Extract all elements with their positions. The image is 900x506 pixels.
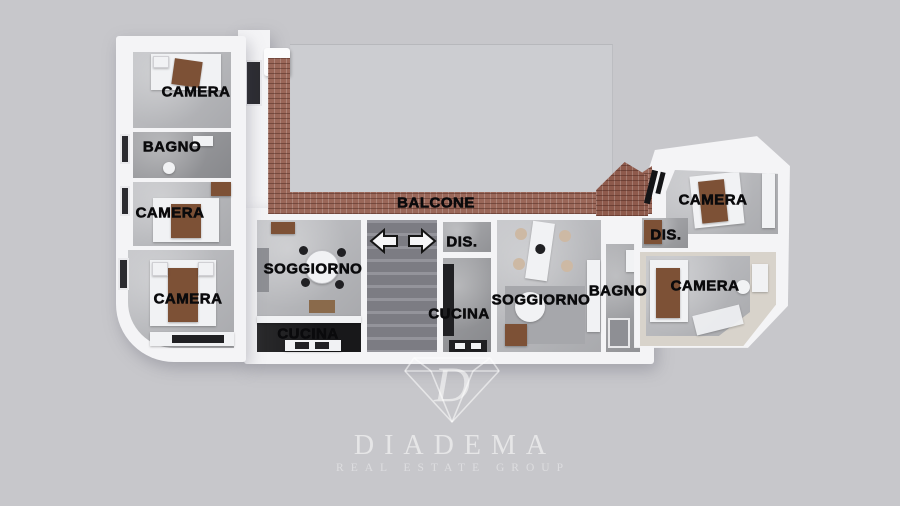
- wardrobe: [211, 182, 231, 196]
- room-label-cucina-left: CUCINA: [277, 326, 338, 343]
- room-label-soggiorno-right: SOGGIORNO: [492, 292, 591, 309]
- balcony-floor: [290, 44, 613, 195]
- chair: [515, 228, 527, 240]
- room-label-camera-top-left: CAMERA: [162, 84, 231, 101]
- window: [120, 186, 130, 216]
- floorplan-render: CAMERA BAGNO CAMERA CAMERA SOGGIORNO CUC…: [0, 0, 900, 506]
- room-label-camera-bottom-right: CAMERA: [671, 278, 740, 295]
- chair: [301, 278, 310, 287]
- sink-unit: [752, 264, 768, 292]
- balcony-wall-window: [245, 60, 262, 106]
- chair: [299, 246, 308, 255]
- chair: [335, 280, 344, 289]
- room-label-camera-top-right: CAMERA: [679, 192, 748, 209]
- dining-table: [525, 221, 555, 281]
- room-label-camera-bottom-left: CAMERA: [154, 291, 223, 308]
- chair: [561, 260, 573, 272]
- cabinet: [271, 222, 295, 234]
- chest: [309, 300, 335, 313]
- watermark-monogram: D: [434, 355, 470, 413]
- window: [120, 134, 130, 164]
- room-label-cucina-center: CUCINA: [428, 306, 489, 323]
- room-floor-camera-bottom-right: [640, 252, 776, 346]
- stairs-arrows: [369, 228, 439, 258]
- chair: [337, 248, 346, 257]
- watermark-brand: DIADEMA: [354, 430, 556, 462]
- chair: [513, 258, 525, 270]
- tv-bench: [150, 332, 234, 346]
- arrow-right-icon: [409, 230, 435, 252]
- staircase: [367, 220, 437, 352]
- kitchen-appliance: [449, 340, 487, 352]
- shower: [608, 318, 630, 348]
- room-label-soggiorno-left: SOGGIORNO: [264, 261, 363, 278]
- room-label-camera-mid-left: CAMERA: [136, 205, 205, 222]
- kitchen-cabinets: [443, 264, 454, 336]
- room-floor-soggiorno-right: [497, 220, 601, 352]
- room-label-dis-center: DIS.: [446, 234, 477, 251]
- toilet: [163, 162, 175, 174]
- chair: [559, 230, 571, 242]
- arrow-left-icon: [371, 230, 397, 252]
- window: [118, 258, 129, 290]
- room-label-bagno-left: BAGNO: [143, 139, 201, 156]
- balcony-brick-railing-left: [268, 58, 290, 214]
- kitchen-counter: [257, 316, 361, 323]
- closet: [762, 172, 775, 228]
- room-label-balcone: BALCONE: [397, 195, 475, 212]
- armchair: [505, 324, 527, 346]
- watermark-tagline: REAL ESTATE GROUP: [336, 462, 570, 474]
- room-label-dis-right: DIS.: [650, 227, 681, 244]
- room-label-bagno-right: BAGNO: [589, 283, 647, 300]
